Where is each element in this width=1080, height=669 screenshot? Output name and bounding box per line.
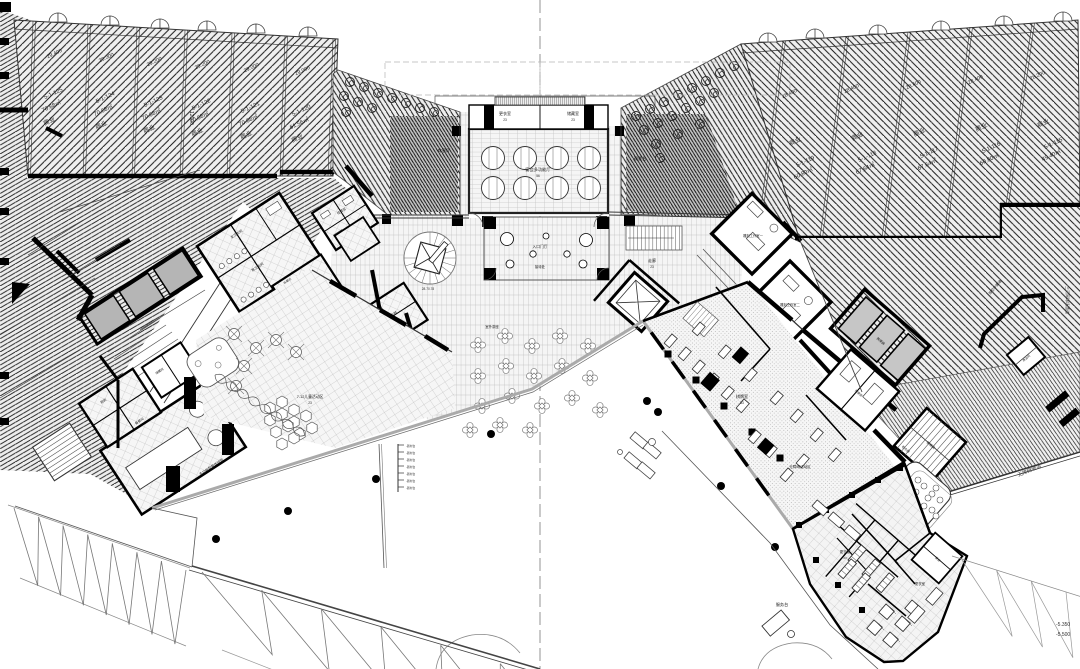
svg-text:12000: 12000 [188, 111, 194, 125]
svg-text:休息厅: 休息厅 [438, 147, 451, 154]
svg-text:-器材台: -器材台 [406, 472, 416, 476]
svg-text:宴会多功能厅: 宴会多功能厅 [525, 166, 550, 173]
svg-text:走廊: 走廊 [648, 257, 656, 263]
svg-text:接待处: 接待处 [535, 264, 546, 269]
svg-text:更衣室: 更衣室 [840, 549, 851, 554]
svg-text:雕刻工作室一: 雕刻工作室一 [743, 233, 763, 238]
svg-text:三河网球场通道: 三河网球场通道 [1065, 286, 1071, 314]
svg-text:棋牌室: 棋牌室 [736, 393, 748, 399]
svg-text:室外茶座: 室外茶座 [485, 324, 499, 329]
svg-text:23: 23 [843, 556, 847, 560]
svg-text:7-12儿童活动区: 7-12儿童活动区 [297, 394, 324, 399]
svg-text:-器材台: -器材台 [406, 479, 416, 483]
svg-text:观景台: 观景台 [634, 155, 647, 162]
svg-text:-5.500: -5.500 [1056, 632, 1070, 638]
svg-text:雕刻工作室二: 雕刻工作室二 [780, 302, 800, 307]
svg-text:-器材台: -器材台 [406, 486, 416, 490]
svg-text:23: 23 [650, 265, 654, 269]
svg-text:无障碍活动区: 无障碍活动区 [789, 464, 811, 469]
svg-text:储藏室: 储藏室 [567, 110, 579, 116]
svg-text:23: 23 [308, 401, 312, 405]
svg-text:56: 56 [536, 174, 540, 178]
svg-text:23: 23 [571, 118, 575, 122]
svg-text:入口门厅: 入口门厅 [532, 244, 547, 249]
svg-text:更衣室: 更衣室 [499, 110, 511, 116]
svg-text:-器材台: -器材台 [406, 451, 416, 455]
svg-text:53: 53 [740, 401, 744, 405]
svg-text:-器材台: -器材台 [406, 465, 416, 469]
svg-text:28.70.78: 28.70.78 [422, 287, 435, 291]
svg-text:23: 23 [503, 118, 507, 122]
svg-text:-5.350: -5.350 [1056, 622, 1070, 628]
svg-text:服务台: 服务台 [776, 601, 789, 608]
svg-text:-器材台: -器材台 [406, 444, 416, 448]
svg-text:-器材台: -器材台 [406, 458, 416, 462]
svg-text:更衣室: 更衣室 [915, 581, 926, 586]
